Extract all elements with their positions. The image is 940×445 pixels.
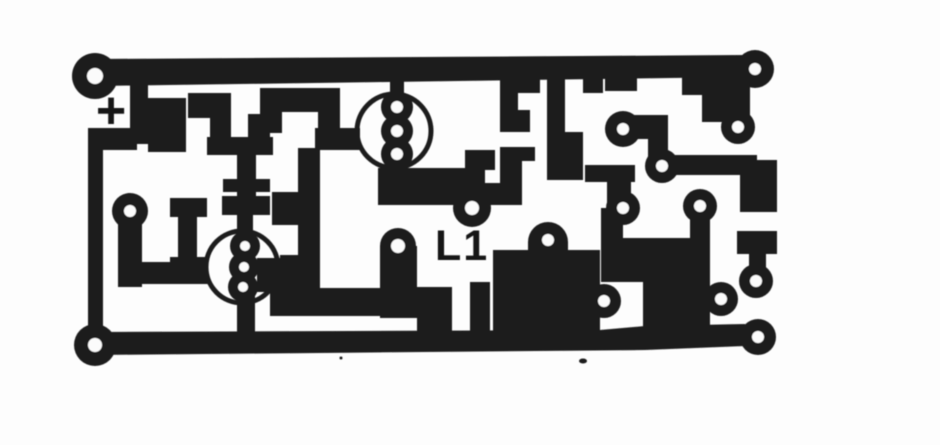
trace-segment	[248, 114, 270, 142]
drill-hole	[391, 239, 405, 253]
scan-speck	[340, 357, 343, 360]
trace-segment	[315, 128, 360, 150]
drill-hole	[239, 262, 249, 272]
trace-segment	[118, 262, 208, 284]
trace-segment	[178, 215, 197, 259]
pcb-artwork: + L1	[72, 50, 777, 366]
trace-segment	[148, 98, 186, 152]
top-rail-trace	[95, 55, 745, 86]
drill-hole	[617, 123, 629, 135]
drill-hole	[465, 201, 479, 215]
drill-hole	[391, 101, 403, 113]
trace-segment	[260, 88, 340, 112]
drill-hole	[391, 125, 403, 137]
trace-segment	[270, 288, 382, 316]
drill-hole	[715, 293, 727, 305]
drill-hole	[694, 200, 706, 212]
drill-hole	[240, 241, 250, 251]
square-pad	[737, 231, 777, 254]
drill-hole	[238, 282, 248, 292]
trace-segment	[210, 93, 231, 142]
drill-hole	[656, 160, 668, 172]
trace-segment	[493, 250, 600, 333]
trace-segment	[417, 287, 452, 332]
pcb-layout-image: + L1	[0, 0, 940, 445]
left-rail-trace	[88, 128, 103, 346]
drill-hole	[88, 338, 102, 352]
trace-segment	[470, 282, 490, 334]
scan-speck	[579, 359, 587, 364]
trace-segment	[583, 77, 603, 93]
trace-segment	[170, 198, 207, 217]
scan-artifacts	[340, 357, 588, 364]
trace-segment	[547, 132, 583, 180]
trace-segment	[500, 147, 522, 185]
trace-segment	[257, 258, 313, 292]
trace-segment	[380, 246, 417, 318]
drill-hole	[617, 202, 629, 214]
drill-hole	[752, 331, 764, 343]
drill-hole	[732, 121, 744, 133]
drill-hole	[124, 205, 136, 217]
drill-hole	[391, 148, 403, 160]
copper-traces	[72, 50, 777, 366]
drill-hole	[749, 63, 761, 75]
trace-segment	[390, 58, 404, 96]
drill-hole	[598, 295, 610, 307]
drill-hole	[542, 234, 554, 246]
trace-segment	[690, 208, 710, 248]
trace-segment	[605, 74, 637, 91]
trace-segment	[500, 110, 530, 132]
inductor-l1-label: L1	[435, 222, 489, 270]
trace-segment	[465, 150, 495, 170]
polarity-plus-label: +	[96, 82, 126, 140]
pcb-scan: + L1	[0, 0, 940, 445]
drill-hole	[750, 275, 762, 287]
trace-segment	[740, 160, 777, 212]
trace-segment	[485, 183, 522, 205]
